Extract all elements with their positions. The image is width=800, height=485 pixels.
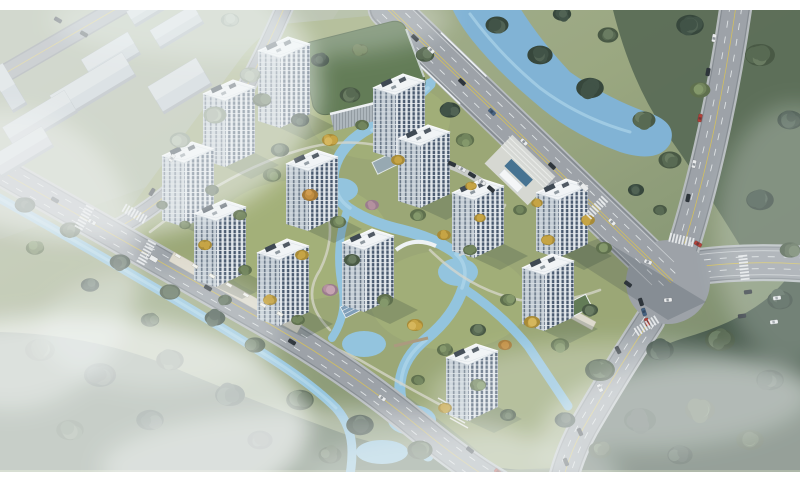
- haze-veil: [0, 8, 800, 474]
- frame-bottom: [0, 472, 800, 485]
- aerial-masterplan-rendering: [0, 0, 800, 485]
- rendering-canvas: [0, 0, 800, 485]
- frame-top: [0, 0, 800, 10]
